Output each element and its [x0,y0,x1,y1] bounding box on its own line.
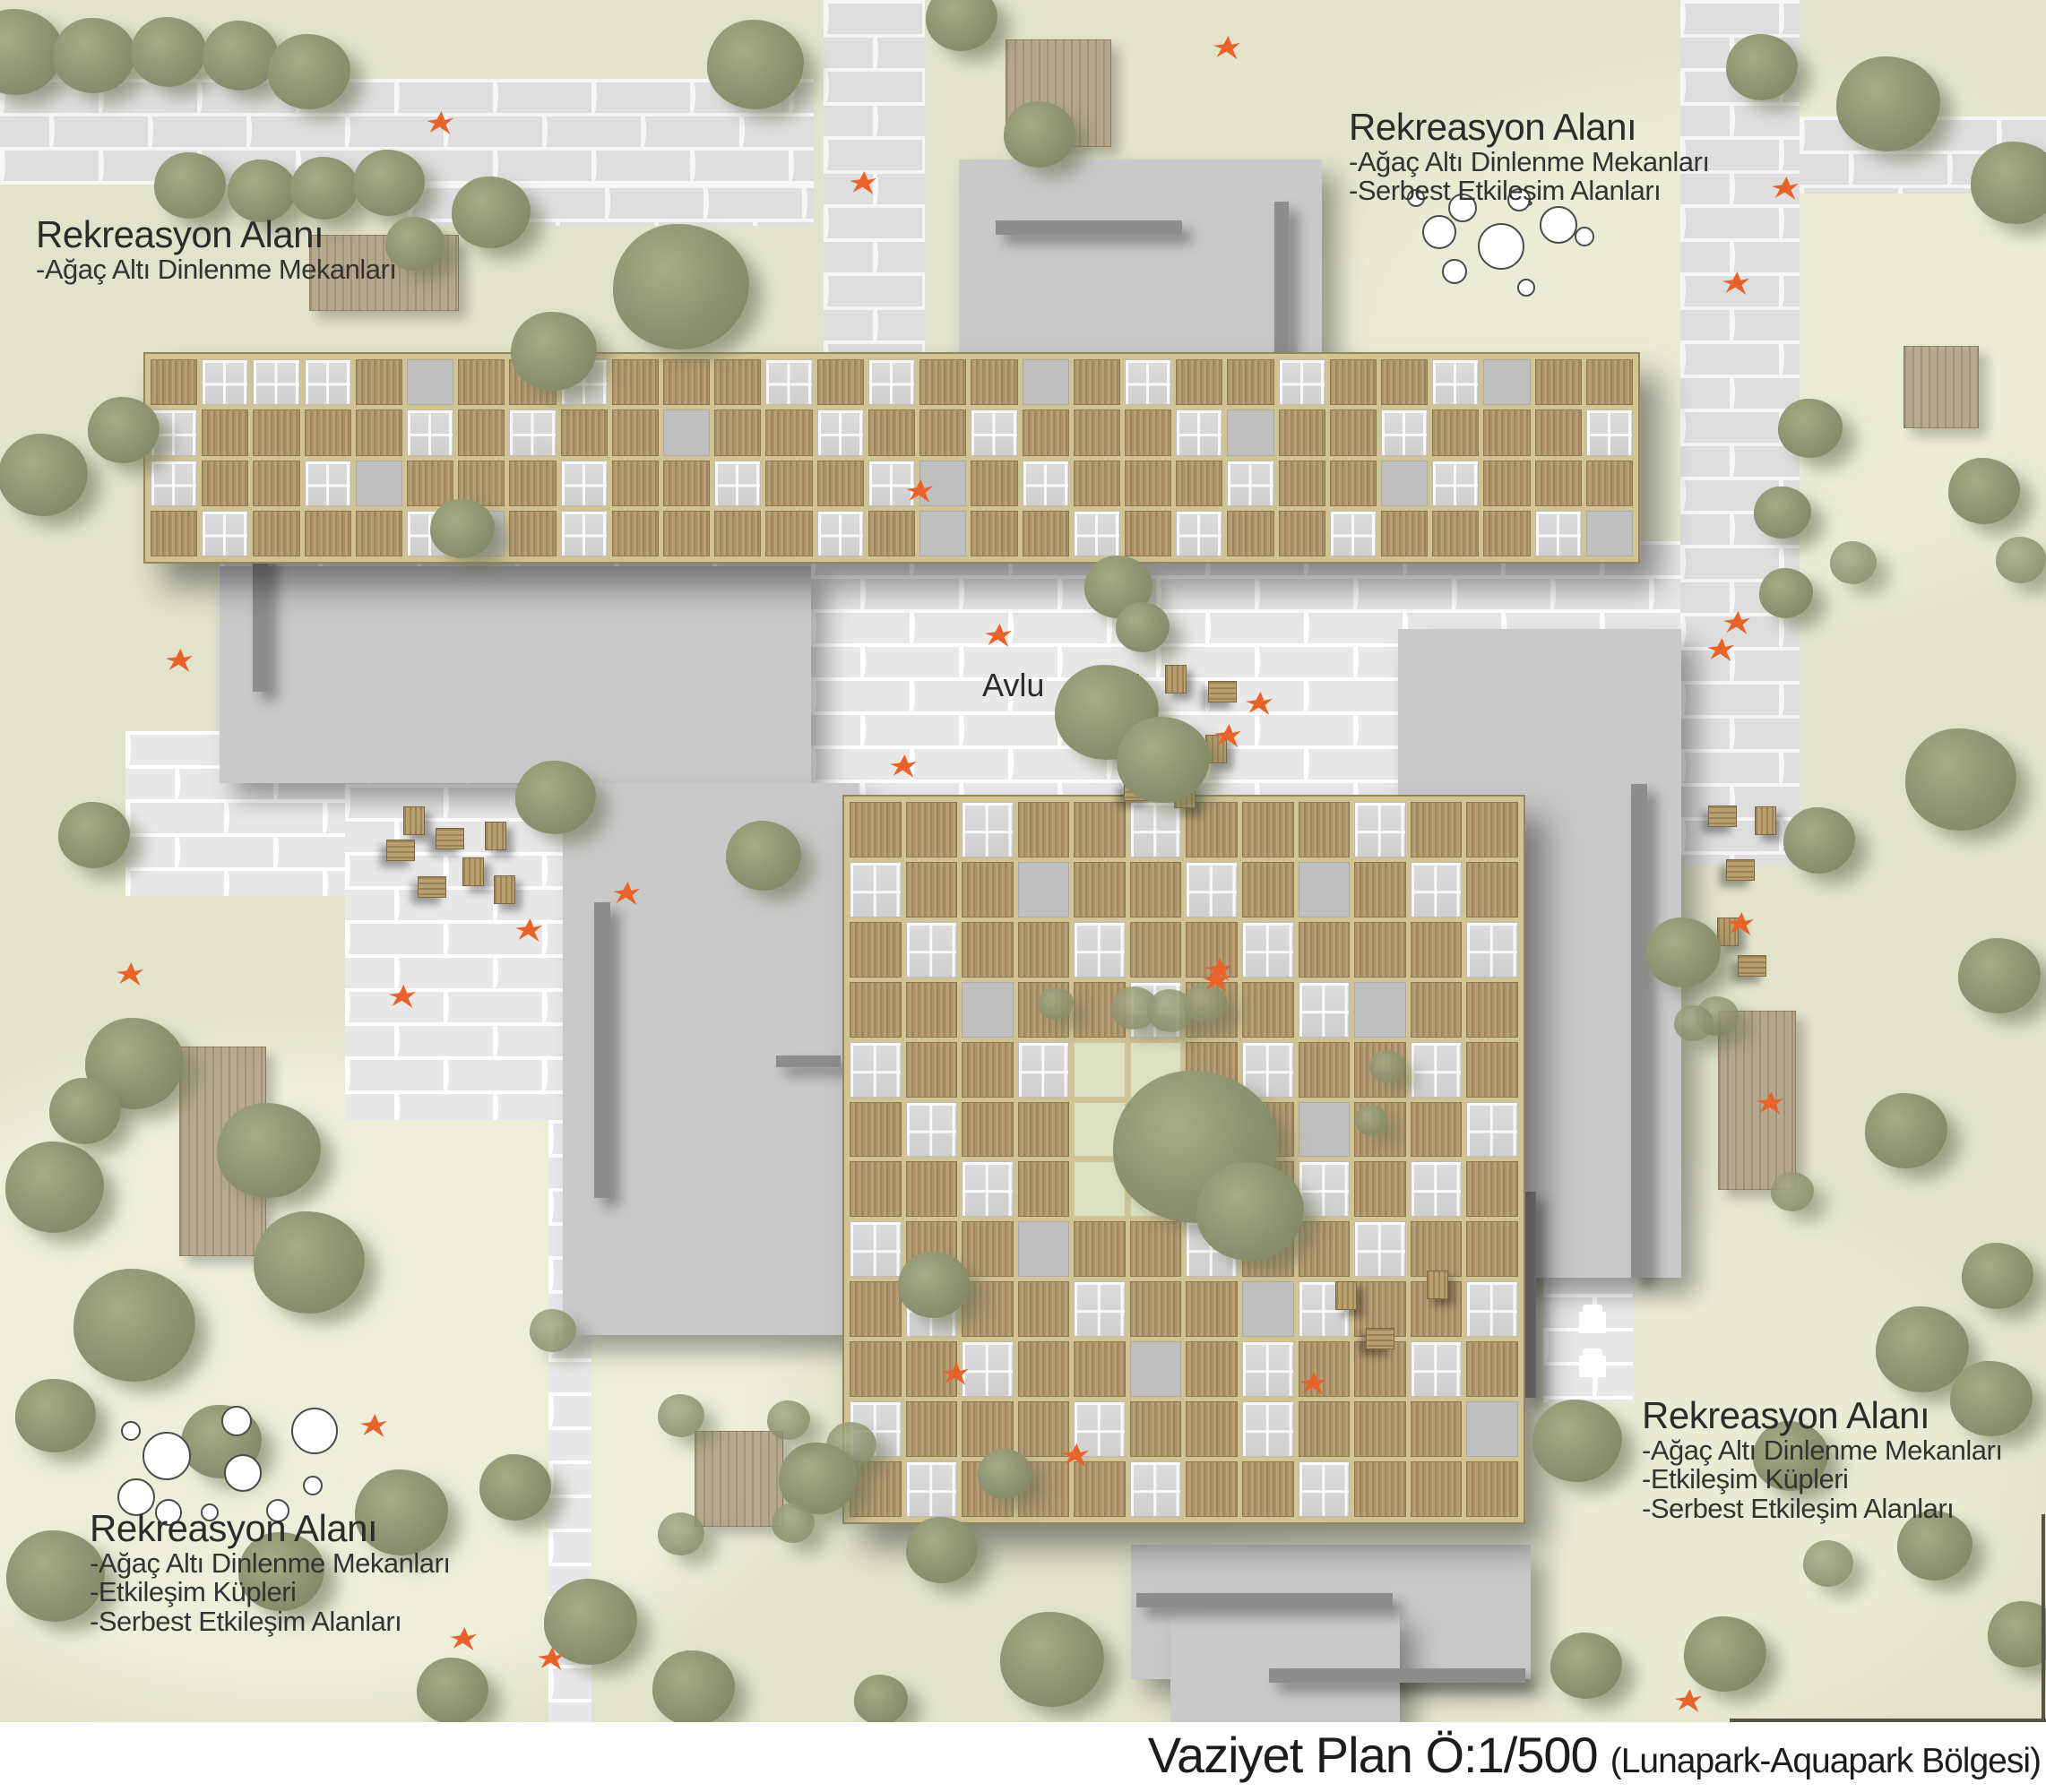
tree [1948,458,2020,524]
roof-cell [407,461,453,506]
tree [1836,56,1940,152]
tree [1684,1616,1766,1693]
roof-cell [1466,1281,1518,1337]
roof-cell [253,511,299,556]
tree [1830,541,1877,584]
building-block [220,566,811,783]
tree [203,21,278,90]
tree [1184,984,1227,1023]
roof-cell [765,359,812,405]
tree [290,157,358,220]
roof-cell [906,982,958,1038]
tree [5,1142,104,1232]
tree [430,499,495,558]
tree [88,397,160,463]
roof-cell [612,461,659,506]
tree [658,1394,704,1437]
roof-cell [1125,409,1171,455]
roof-cell [1330,359,1377,405]
roof-cell [1176,511,1222,556]
roof-cell [1535,461,1582,506]
roof-cell [1432,359,1479,405]
roof-cell [305,359,351,405]
roof-cell [612,511,659,556]
tree [1996,537,2046,583]
roof-cell [850,1221,902,1277]
tree [767,1400,810,1440]
tree [926,0,997,51]
tree [417,1658,488,1722]
tree [1771,1172,1814,1211]
roof-cell [906,922,958,978]
tree [772,1503,815,1543]
interaction-circle [1517,279,1535,297]
roof-cell [1381,511,1428,556]
roof-cell [1354,922,1406,978]
person-icon [117,962,143,986]
roof-cell [1018,1281,1070,1337]
roof-cell [1330,461,1377,506]
tree [707,20,804,108]
roof-cell [919,511,966,556]
roof-cell [850,1161,902,1217]
roof-cell [1411,1461,1463,1517]
roof-cell [1354,1461,1406,1517]
roof-cell [1586,359,1633,405]
tree [613,224,749,349]
roof-cell [202,409,248,455]
roof-cell [971,461,1017,506]
roof-cell [1074,461,1120,506]
roof-cell [356,461,402,506]
tree [49,1078,121,1144]
roof-cell [1074,1281,1126,1337]
person-icon [166,649,193,672]
interaction-circle [142,1432,191,1480]
tree [0,434,88,516]
plan-caption-subtitle: (Lunapark-Aquapark Bölgesi) [1610,1742,2041,1781]
label-line: -Ağaç Altı Dinlenme Mekanları [36,255,396,285]
roof-cell [1125,359,1171,405]
roof-cell [151,359,197,405]
tree [254,1211,365,1314]
tree [854,1675,908,1722]
roof-cell [407,409,453,455]
tree [1196,1162,1304,1261]
roof-cell [817,409,864,455]
roof-cell [1299,982,1351,1038]
person-icon [1675,1689,1702,1712]
roof-cell [1074,1042,1126,1098]
roof-cell [1483,409,1530,455]
roof-cell [1227,409,1273,455]
roof-cell [1074,802,1126,857]
roof-cell [1018,922,1070,978]
interaction-cube [1427,1271,1448,1299]
roof-cell [1018,1221,1070,1277]
long-grid-building [143,352,1640,564]
tree [1532,1400,1622,1482]
tree [268,34,350,110]
roof-cell [1299,802,1351,857]
interaction-cube [1335,1281,1357,1310]
roof-cell [962,1281,1014,1337]
roof-cell [1411,922,1463,978]
roof-cell [714,409,761,455]
roof-cell [850,922,902,978]
roof-cell [1023,461,1069,506]
tree [353,150,425,216]
interaction-cube [1708,806,1737,827]
roof-cell [1018,862,1070,918]
label-line: -Ağaç Altı Dinlenme Mekanları [1642,1436,2002,1466]
roof-cell [1483,461,1530,506]
roof-cell [1023,359,1069,405]
roof-cell [663,511,710,556]
wall-bar [1136,1593,1393,1607]
interaction-cube [1755,806,1776,835]
interaction-cube [1208,681,1237,702]
roof-cell [1186,1341,1238,1397]
bench-icon [1583,1348,1602,1375]
roof-cell [1023,409,1069,455]
roof-cell [906,1161,958,1217]
roof-cell [1411,862,1463,918]
tree [511,312,597,391]
roof-cell [1432,409,1479,455]
roof-cell [202,359,248,405]
roof-cell [919,359,966,405]
plan-caption-title: Vaziyet Plan Ö:1/500 [1148,1722,1598,1788]
roof-cell [817,359,864,405]
label-recreation-top-right: Rekreasyon Alanı -Ağaç Altı Dinlenme Mek… [1349,108,1709,206]
roof-cell [1023,511,1069,556]
roof-cell [1279,359,1325,405]
interaction-circle [1478,223,1524,270]
interaction-cube [1726,859,1755,881]
person-icon [450,1627,477,1650]
interaction-circle [224,1454,262,1492]
roof-cell [1466,1341,1518,1397]
tree [906,1517,978,1583]
roof-cell [1381,409,1428,455]
roof-cell [1466,922,1518,978]
label-recreation-bottom-right: Rekreasyon Alanı -Ağaç Altı Dinlenme Mek… [1642,1396,2002,1524]
tree [131,17,206,86]
roof-cell [1354,982,1406,1038]
person-icon [360,1414,387,1437]
roof-cell [1074,511,1120,556]
roof-cell [1130,1341,1182,1397]
roof-cell [868,409,915,455]
roof-cell [962,922,1014,978]
wall-bar [1631,784,1647,1278]
roof-cell [561,409,608,455]
roof-cell [962,1221,1014,1277]
roof-cell [1130,802,1182,857]
interaction-cube [1738,955,1766,977]
roof-cell [1483,511,1530,556]
roof-cell [1176,409,1222,455]
tree [1674,1005,1714,1041]
roof-cell [971,359,1017,405]
tree [1759,568,1813,617]
interaction-cube [494,875,515,904]
roof-cell [509,461,556,506]
roof-cell [1130,922,1182,978]
tree [544,1579,637,1665]
roof-cell [1381,359,1428,405]
interaction-circle [221,1406,252,1436]
roof-cell [1466,1042,1518,1098]
site-plan-drawing: Rekreasyon Alanı -Ağaç Altı Dinlenme Mek… [0,0,2046,1722]
label-courtyard: Avlu [982,667,1044,704]
roof-cell [458,409,505,455]
roof-cell [1130,1401,1182,1457]
roof-cell [906,862,958,918]
roof-cell [1411,1221,1463,1277]
roof-cell [253,359,299,405]
roof-cell [1074,1221,1126,1277]
roof-cell [1242,862,1294,918]
tree [53,18,135,94]
roof-cell [850,982,902,1038]
interaction-cube [1366,1328,1394,1349]
roof-cell [1018,1042,1070,1098]
roof-cell [850,1461,902,1517]
interaction-cube [436,828,464,849]
roof-cell [1354,1161,1406,1217]
tree [530,1309,576,1352]
tree [652,1650,735,1722]
roof-cell [663,461,710,506]
tree [1958,938,2041,1014]
roof-cell [1074,922,1126,978]
roof-cell [1535,359,1582,405]
roof-cell [1299,1401,1351,1457]
tree [479,1454,551,1521]
roof-cell [1299,1161,1351,1217]
roof-cell [906,1341,958,1397]
roof-cell [850,1341,902,1397]
person-icon [1213,36,1240,59]
roof-cell [1586,511,1633,556]
tree [1726,34,1798,100]
roof-cell [1299,1461,1351,1517]
roof-cell [1483,359,1530,405]
label-line: -Serbest Etkileşim Alanları [1349,177,1709,206]
roof-cell [1186,1401,1238,1457]
roof-cell [1074,1401,1126,1457]
building-block [1170,1609,1400,1722]
tree [1754,487,1811,539]
roof-cell [962,862,1014,918]
wood-deck [695,1431,783,1527]
roof-cell [906,1461,958,1517]
interaction-circle [303,1476,323,1495]
roof-cell [850,1102,902,1158]
roof-cell [868,461,915,506]
caption-band: Vaziyet Plan Ö:1/500 (Lunapark-Aquapark … [0,1722,2046,1792]
roof-cell [714,359,761,405]
wall-bar [996,220,1182,235]
roof-cell [1354,1401,1406,1457]
label-line: -Ağaç Altı Dinlenme Mekanları [1349,148,1709,177]
roof-cell [919,409,966,455]
roof-cell [906,1042,958,1098]
roof-cell [765,511,812,556]
interaction-circle [1442,259,1467,284]
roof-cell [1227,461,1273,506]
tree [1803,1540,1853,1587]
roof-cell [151,461,197,506]
roof-cell [1130,862,1182,918]
interaction-circle [121,1421,141,1441]
tree [1783,807,1855,874]
roof-cell [1186,1281,1238,1337]
roof-cell [1330,409,1377,455]
roof-cell [1242,922,1294,978]
site-plan-page: Rekreasyon Alanı -Ağaç Altı Dinlenme Mek… [0,0,2046,1792]
roof-cell [1466,1401,1518,1457]
interaction-cube [1165,665,1187,694]
label-line: -Serbest Etkileşim Alanları [1642,1495,2002,1524]
roof-cell [1242,1461,1294,1517]
roof-cell [962,802,1014,857]
tree [1355,1105,1387,1134]
roof-cell [1242,1281,1294,1337]
tree [978,1449,1032,1498]
roof-cell [1018,1341,1070,1397]
roof-cell [1466,1221,1518,1277]
roof-cell [1411,1401,1463,1457]
roof-cell [1466,1102,1518,1158]
roof-cell [962,1341,1014,1397]
roof-cell [971,511,1017,556]
roof-cell [765,461,812,506]
label-line: -Serbest Etkileşim Alanları [90,1607,450,1637]
interaction-circle [1540,206,1577,244]
roof-cell [509,409,556,455]
roof-cell [1186,802,1238,857]
roof-cell [1411,802,1463,857]
roof-cell [1411,1341,1463,1397]
roof-cell [817,461,864,506]
plan-border [2042,1514,2045,1722]
roof-cell [1242,1341,1294,1397]
interaction-cube [485,822,506,850]
roof-cell [1186,862,1238,918]
roof-cell [1176,359,1222,405]
roof-cell [561,461,608,506]
roof-cell [253,409,299,455]
wood-deck [1718,1011,1796,1190]
roof-cell [1227,359,1273,405]
tree [1962,1243,2033,1309]
interaction-cube [462,857,484,886]
roof-cell [962,1161,1014,1217]
roof-cell [1018,802,1070,857]
roof-cell [356,409,402,455]
roof-cell [1432,461,1479,506]
roof-cell [1466,1161,1518,1217]
roof-cell [1411,1102,1463,1158]
roof-cell [1018,1161,1070,1217]
label-line: -Etkileşim Küpleri [90,1578,450,1607]
tree [1971,142,2046,224]
roof-cell [1411,1042,1463,1098]
roof-cell [356,511,402,556]
roof-cell [1242,1401,1294,1457]
roof-cell [1586,409,1633,455]
roof-cell [906,1102,958,1158]
roof-cell [202,511,248,556]
roof-cell [817,511,864,556]
roof-cell [458,359,505,405]
tree [1645,918,1721,986]
tree [1117,717,1210,803]
roof-cell [868,511,915,556]
tree [15,1379,96,1453]
tree [58,802,130,868]
roof-cell [1535,511,1582,556]
roof-cell [1586,461,1633,506]
roof-cell [407,359,453,405]
label-line: -Ağaç Altı Dinlenme Mekanları [90,1549,450,1579]
roof-cell [1279,511,1325,556]
roof-cell [1354,1341,1406,1397]
roof-cell [1130,1281,1182,1337]
label-recreation-top-left: Rekreasyon Alanı -Ağaç Altı Dinlenme Mek… [36,215,396,284]
tree [452,177,531,249]
tree [1116,602,1170,651]
tree [154,152,226,219]
roof-cell [151,511,197,556]
roof-cell [1242,802,1294,857]
roof-cell [1074,862,1126,918]
roof-cell [1432,511,1479,556]
tree [1550,1633,1622,1699]
interaction-circle [291,1408,338,1454]
roof-cell [1466,802,1518,857]
roof-cell [1186,1461,1238,1517]
label-line: -Etkileşim Küpleri [1642,1465,2002,1495]
roof-cell [906,1401,958,1457]
roof-cell [1299,1042,1351,1098]
label-title: Rekreasyon Alanı [36,215,396,255]
roof-cell [1074,409,1120,455]
roof-cell [1466,1461,1518,1517]
roof-cell [202,461,248,506]
wall-bar [776,1055,841,1067]
roof-cell [612,409,659,455]
roof-cell [1466,982,1518,1038]
roof-cell [1299,1221,1351,1277]
roof-cell [1299,922,1351,978]
wood-deck [1904,346,1979,428]
tree [1000,1612,1104,1708]
roof-cell [850,1042,902,1098]
roof-cell [253,461,299,506]
roof-cell [1242,982,1294,1038]
tree [1778,399,1843,458]
tree [1865,1093,1947,1169]
roof-cell [1130,1221,1182,1277]
roof-cell [1125,511,1171,556]
roof-cell [1125,461,1171,506]
roof-cell [1411,1161,1463,1217]
roof-cell [1176,461,1222,506]
